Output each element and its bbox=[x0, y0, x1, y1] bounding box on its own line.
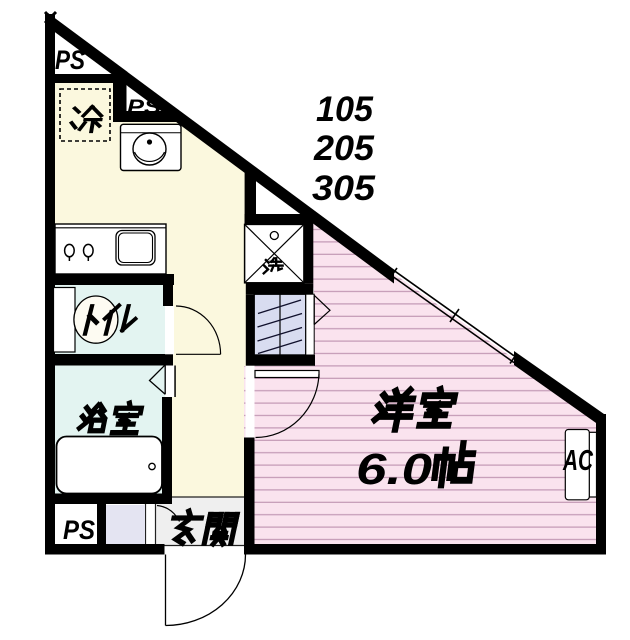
svg-text:105: 105 bbox=[316, 90, 374, 129]
svg-text:6.0: 6.0 bbox=[356, 445, 433, 494]
svg-text:AC: AC bbox=[562, 445, 593, 477]
svg-text:PS: PS bbox=[55, 45, 85, 75]
svg-text:PS: PS bbox=[63, 515, 95, 545]
svg-text:205: 205 bbox=[313, 129, 375, 168]
svg-text:PS: PS bbox=[127, 97, 162, 119]
svg-text:305: 305 bbox=[312, 169, 376, 208]
